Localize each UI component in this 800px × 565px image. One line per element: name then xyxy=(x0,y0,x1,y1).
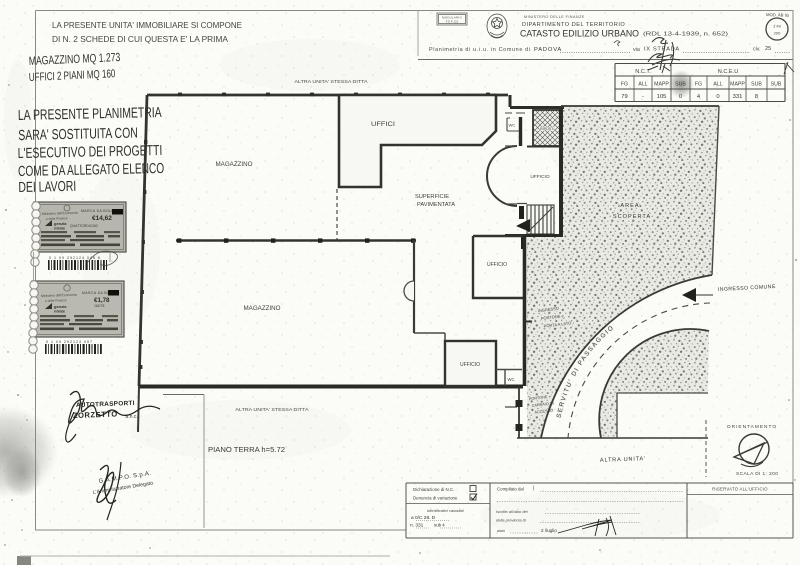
svg-text:25: 25 xyxy=(765,46,771,52)
svg-text:SUB: SUB xyxy=(751,82,762,88)
svg-text:UFFICIO: UFFICIO xyxy=(487,262,507,268)
svg-text:MAPP: MAPP xyxy=(730,82,745,88)
svg-text:LA PRESENTE UNITA' IMMOBILI: LA PRESENTE UNITA' IMMOBILIARE SI COMPON… xyxy=(52,21,243,30)
svg-text:RISERVATO ALL'UFFICIO: RISERVATO ALL'UFFICIO xyxy=(712,487,768,492)
svg-text:Identificativi catastali: Identificativi catastali xyxy=(427,508,464,513)
svg-text:SUB: SUB xyxy=(771,82,782,88)
svg-text:MARCA DA BOLLO: MARCA DA BOLLO xyxy=(81,209,117,213)
svg-text:MOD. AB IG: MOD. AB IG xyxy=(766,12,789,18)
svg-text:N.C.E.U: N.C.E.U xyxy=(718,69,739,75)
svg-text:n. 331: n. 331 xyxy=(410,523,424,529)
svg-text:(RDL 13-4-1939, n. 652): (RDL 13-4-1939, n. 652) xyxy=(643,32,728,38)
svg-text:€1,78: €1,78 xyxy=(94,297,110,304)
svg-text:via: via xyxy=(633,47,640,53)
svg-text:F.D.P. 115: F.D.P. 115 xyxy=(446,20,459,24)
svg-text:ORIENTAMENTO: ORIENTAMENTO xyxy=(727,424,777,430)
svg-text:ntrate: ntrate xyxy=(54,309,66,314)
svg-text:MINISTERO DELLE FINANZE: MINISTERO DELLE FINANZE xyxy=(524,15,585,19)
svg-text:QUATTORDICI/62: QUATTORDICI/62 xyxy=(70,224,98,228)
svg-text:SCOPERTA: SCOPERTA xyxy=(613,214,651,220)
svg-text:ZORZETTO: ZORZETTO xyxy=(73,409,118,420)
svg-text:Compilato dal: Compilato dal xyxy=(497,487,524,492)
svg-text:8: 8 xyxy=(755,94,758,100)
svg-text:SUPERFICIE: SUPERFICIE xyxy=(415,194,449,200)
svg-text:-: - xyxy=(642,94,644,100)
svg-text:COME DA ALLEGATO ELENCO: COME DA ALLEGATO ELENCO xyxy=(18,160,165,179)
svg-text:Denuncia di variazione: Denuncia di variazione xyxy=(413,496,458,501)
svg-text:UFFICI: UFFICI xyxy=(371,122,395,128)
svg-text:LA PRESENTE PLANIMETRIA: LA PRESENTE PLANIMETRIA xyxy=(18,104,163,123)
svg-text:PADOVA: PADOVA xyxy=(534,47,562,53)
svg-text:200: 200 xyxy=(774,31,781,36)
svg-text:WC: WC xyxy=(509,123,516,128)
svg-text:ALTRA UNITA' STESSA DITTA: ALTRA UNITA' STESSA DITTA xyxy=(295,79,369,84)
svg-text:0 1 09 292124 057: 0 1 09 292124 057 xyxy=(46,340,93,344)
svg-text:SARA' SOSTITUITA CON: SARA' SOSTITUITA CON xyxy=(18,125,138,144)
svg-text:FG: FG xyxy=(695,82,702,88)
svg-text:2 /luglio: 2 /luglio xyxy=(541,528,557,533)
svg-text:data: data xyxy=(497,528,506,533)
svg-text:105: 105 xyxy=(657,94,667,100)
svg-text:DEI LAVORI: DEI LAVORI xyxy=(18,178,76,195)
svg-text:AREA: AREA xyxy=(620,203,639,209)
svg-text:L'ESECUTIVO DEI PROGETTI: L'ESECUTIVO DEI PROGETTI xyxy=(18,142,163,161)
svg-text:N.C.T.: N.C.T. xyxy=(635,69,651,75)
svg-text:PIANO TERRA h=5.72: PIANO TERRA h=5.72 xyxy=(208,445,285,454)
svg-text:ALTRA UNITA' STESSA DITTA: ALTRA UNITA' STESSA DITTA xyxy=(236,407,310,412)
svg-text:ALL: ALL xyxy=(638,82,647,88)
svg-text:MAGAZZINO: MAGAZZINO xyxy=(216,162,253,168)
svg-text:UFFICIO: UFFICIO xyxy=(460,362,480,368)
svg-text:WC: WC xyxy=(508,377,515,382)
svg-text:0: 0 xyxy=(716,94,719,100)
svg-text:€14,62: €14,62 xyxy=(92,215,112,222)
svg-text:DI N. 2 SCHEDE DI CUI QU: DI N. 2 SCHEDE DI CUI QUESTA E' LA PRIMA xyxy=(52,35,229,44)
svg-text:PAVIMENTATA: PAVIMENTATA xyxy=(417,202,455,208)
svg-text:RIPOST.: RIPOST. xyxy=(540,127,554,131)
svg-text:civ.: civ. xyxy=(753,47,760,53)
svg-text:1 49: 1 49 xyxy=(773,24,782,29)
svg-text:UFFICIO: UFFICIO xyxy=(530,174,549,180)
svg-text:della provincia di: della provincia di xyxy=(496,518,526,523)
svg-text:FG: FG xyxy=(621,82,628,88)
svg-text:ALL: ALL xyxy=(713,82,722,88)
svg-text:79: 79 xyxy=(621,94,627,100)
svg-text:DIPARTIMENTO DEL TERRITORIO: DIPARTIMENTO DEL TERRITORIO xyxy=(522,22,625,28)
svg-text:sub 4: sub 4 xyxy=(434,523,445,528)
svg-text:ntrate: ntrate xyxy=(54,226,66,231)
svg-text:Iscritto all'albo dei: Iscritto all'albo dei xyxy=(496,509,528,514)
svg-text:331: 331 xyxy=(733,94,743,100)
svg-text:a 0/C 28. D: a 0/C 28. D xyxy=(411,515,436,521)
svg-text:e delle Finanze: e delle Finanze xyxy=(45,298,67,303)
svg-text:MAPP: MAPP xyxy=(654,82,669,88)
svg-text:CATASTO EDILIZIO URBANO: CATASTO EDILIZIO URBANO xyxy=(520,29,639,40)
svg-text:162/78: 162/78 xyxy=(94,304,104,308)
svg-text:Planimetria di u.i.u. in Comun: Planimetria di u.i.u. in Comune di xyxy=(429,47,530,53)
svg-text:SCALA DI 1: 200: SCALA DI 1: 200 xyxy=(736,471,778,477)
svg-text:Dichiarazione di N.C.: Dichiarazione di N.C. xyxy=(413,487,454,492)
svg-text:|: | xyxy=(533,486,534,492)
svg-text:IX STRADA: IX STRADA xyxy=(644,47,680,53)
svg-text:MAGAZZINO: MAGAZZINO xyxy=(244,306,281,312)
